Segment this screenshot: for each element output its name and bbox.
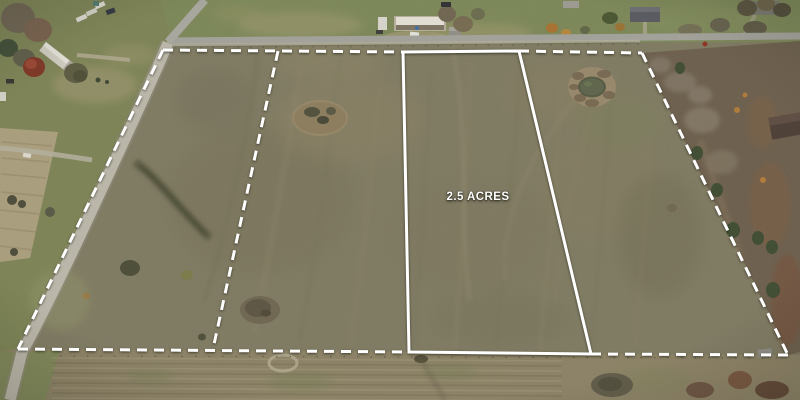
aerial-photo-canvas: 2.5 ACRES xyxy=(0,0,800,400)
aerial-photo: 2.5 ACRES xyxy=(0,0,800,400)
acreage-label: 2.5 ACRES xyxy=(446,191,509,203)
vignette xyxy=(0,0,800,400)
